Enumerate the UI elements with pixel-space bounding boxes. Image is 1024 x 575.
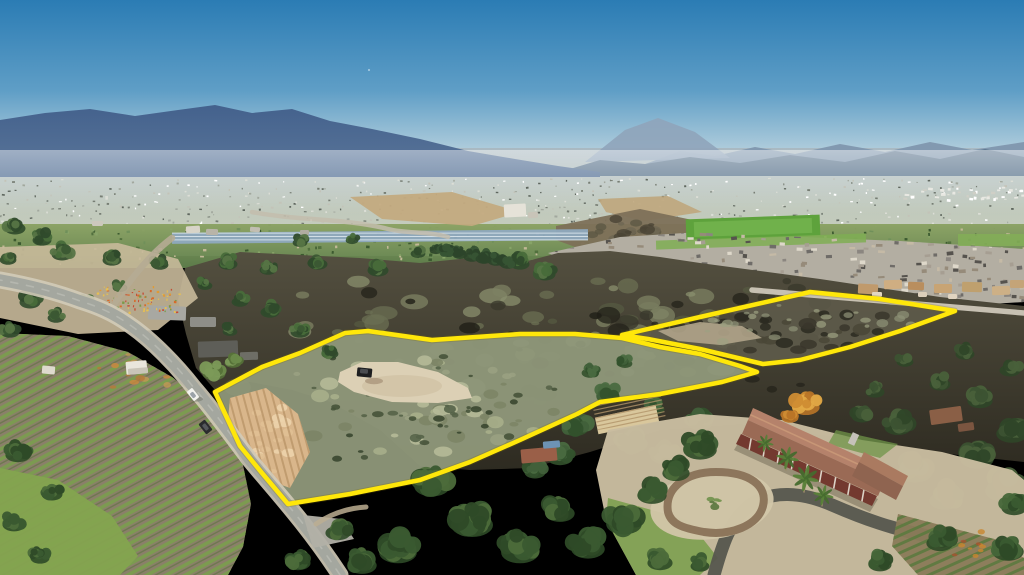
- suv-shadow: [365, 378, 383, 384]
- aerial-photo: [0, 0, 1024, 575]
- suv-on-parcel: [357, 367, 373, 378]
- aerial-photo-canvas: [0, 0, 1024, 575]
- sky-speck: [368, 69, 370, 71]
- park-green-strip-2: [958, 234, 1024, 246]
